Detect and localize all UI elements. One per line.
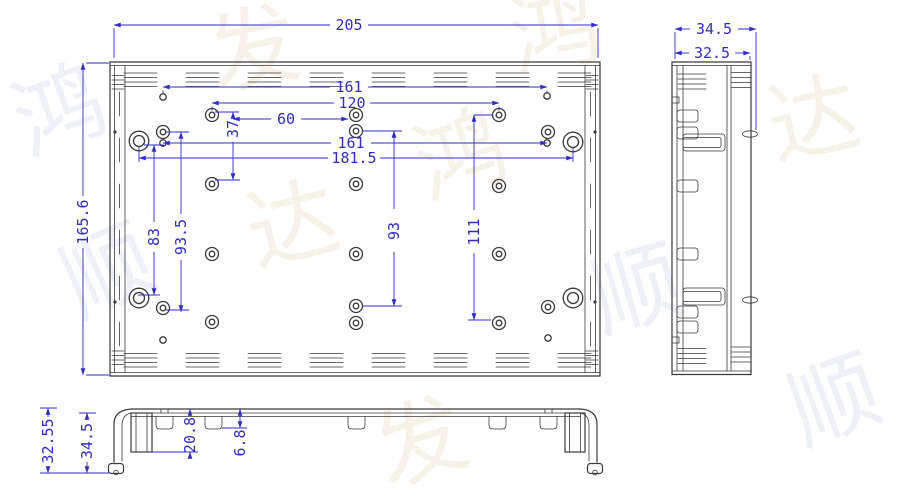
dim-label-overall-depth: 34.5 <box>696 20 732 38</box>
dim-label-inner-depth: 32.5 <box>694 44 730 62</box>
dim-label-height: 165.6 <box>74 199 92 244</box>
dim-label-height345: 34.5 <box>78 423 96 459</box>
svg-text:发: 发 <box>199 0 309 111</box>
side-wall-slots <box>120 92 591 346</box>
svg-text:达: 达 <box>759 59 869 180</box>
dim-label-width: 205 <box>335 16 362 34</box>
dim-label-left-span935: 93.5 <box>172 219 190 255</box>
dim-label-span120: 120 <box>338 94 365 112</box>
svg-text:顺: 顺 <box>45 206 170 339</box>
bottom-view: 32.55 34.5 20.8 6.8 <box>39 408 603 475</box>
svg-text:达: 达 <box>236 164 349 288</box>
dimension-offset37: 37 <box>215 112 242 180</box>
svg-text:鸿: 鸿 <box>0 47 120 176</box>
side-view: 34.5 32.5 <box>672 20 758 375</box>
svg-text:发: 发 <box>362 379 480 500</box>
dim-label-height3255: 32.55 <box>39 418 57 463</box>
watermark: 鸿发顺达鸿顺发达顺鸿 <box>0 0 895 500</box>
dim-label-right-span111: 111 <box>465 218 483 245</box>
dimension-inner-depth: 32.5 <box>675 44 750 62</box>
dimension-span60: 60 <box>233 110 348 128</box>
dimension-overall-depth: 34.5 <box>675 20 756 130</box>
dimension-height3255: 32.55 <box>39 408 109 473</box>
hole-pattern <box>129 93 583 343</box>
dim-label-span60: 60 <box>277 110 295 128</box>
svg-text:鸿: 鸿 <box>402 92 520 220</box>
dim-label-offset37: 37 <box>224 120 242 138</box>
dim-label-mid-span93: 93 <box>385 222 403 240</box>
dim-label-depth208: 20.8 <box>181 417 199 453</box>
dimension-height345: 34.5 <box>78 413 96 473</box>
dim-label-depth68: 6.8 <box>231 429 249 456</box>
dimension-depth208: 20.8 <box>152 409 199 454</box>
dim-label-outer-span: 181.5 <box>331 149 376 167</box>
dim-label-left-span83: 83 <box>145 228 163 246</box>
bottom-tabs <box>156 417 557 430</box>
dimension-left-span935: 93.5 <box>166 132 190 312</box>
technical-drawing: 鸿发顺达鸿顺发达顺鸿 205 <box>0 0 900 500</box>
svg-text:顺: 顺 <box>774 337 894 466</box>
